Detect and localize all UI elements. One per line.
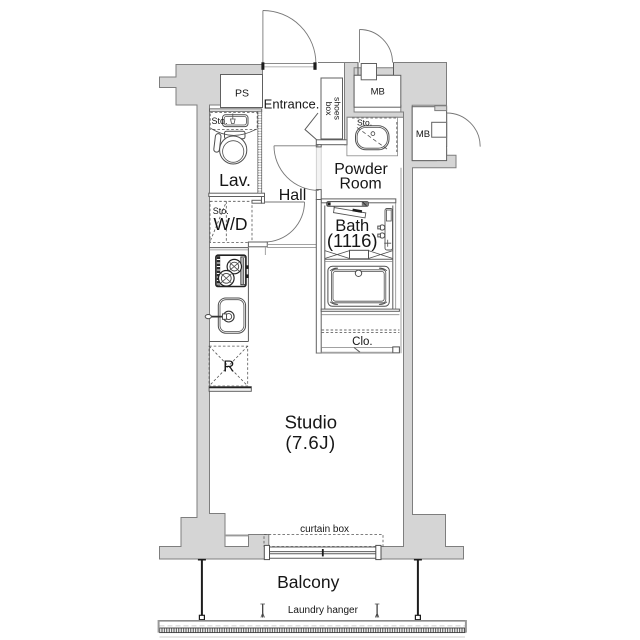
svg-text:Laundry hanger: Laundry hanger — [288, 605, 359, 616]
svg-text:curtain box: curtain box — [300, 524, 349, 535]
svg-text:Lav.: Lav. — [219, 170, 251, 190]
svg-text:Room: Room — [340, 175, 382, 192]
svg-text:R: R — [223, 359, 234, 376]
svg-text:(7.6J): (7.6J) — [285, 432, 335, 453]
svg-text:Hall: Hall — [279, 187, 307, 204]
svg-text:(1116): (1116) — [327, 230, 378, 251]
svg-text:Clo.: Clo. — [352, 336, 372, 348]
svg-text:Sto.: Sto. — [212, 116, 228, 126]
svg-text:box: box — [324, 102, 334, 117]
svg-text:W/D: W/D — [213, 214, 247, 234]
svg-text:Sto.: Sto. — [357, 118, 372, 128]
svg-text:Studio: Studio — [285, 412, 337, 433]
svg-text:PS: PS — [235, 88, 249, 100]
svg-text:MB: MB — [416, 129, 430, 140]
svg-text:MB: MB — [371, 87, 385, 98]
svg-text:Entrance.: Entrance. — [264, 97, 320, 112]
svg-text:Balcony: Balcony — [277, 572, 340, 592]
